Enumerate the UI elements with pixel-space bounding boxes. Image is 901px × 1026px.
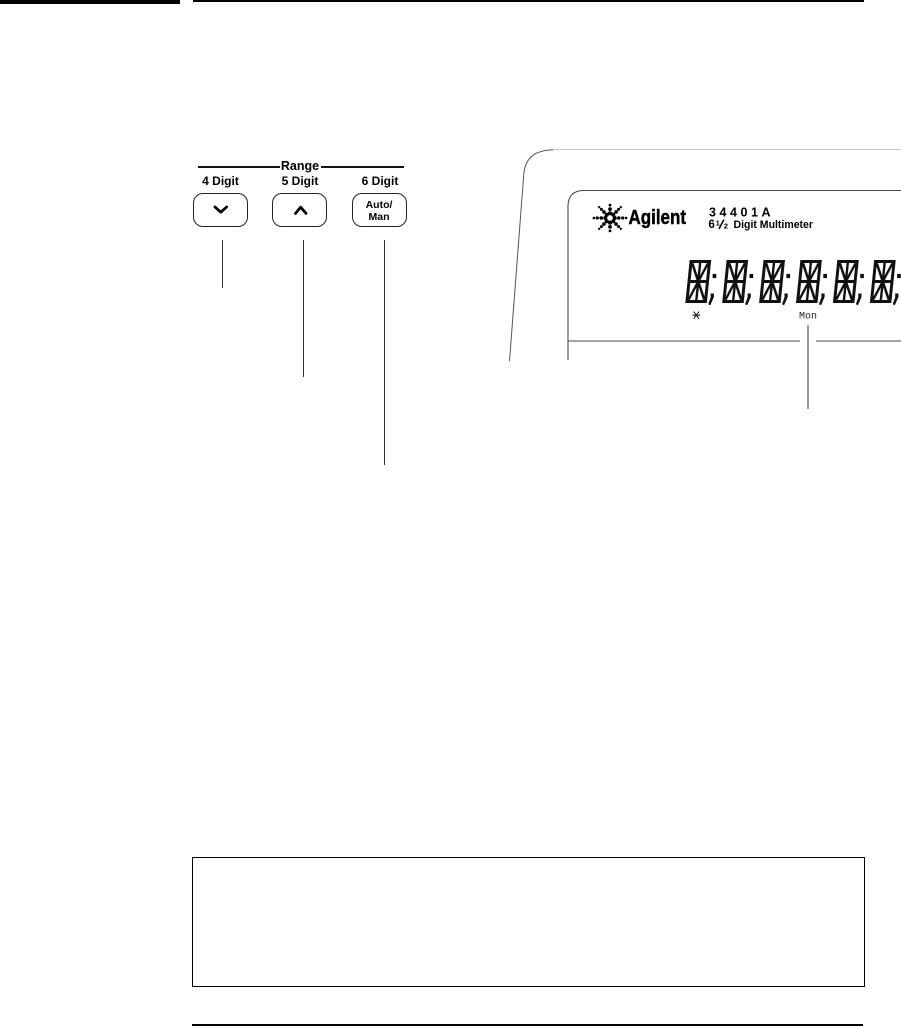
svg-text:34401A: 34401A bbox=[709, 205, 774, 219]
svg-text:6: 6 bbox=[708, 218, 715, 231]
svg-text:Mon: Mon bbox=[799, 312, 817, 323]
svg-text:2: 2 bbox=[724, 221, 728, 230]
svg-text:Agilent: Agilent bbox=[629, 206, 687, 229]
svg-text:Digit Multimeter: Digit Multimeter bbox=[734, 219, 814, 231]
